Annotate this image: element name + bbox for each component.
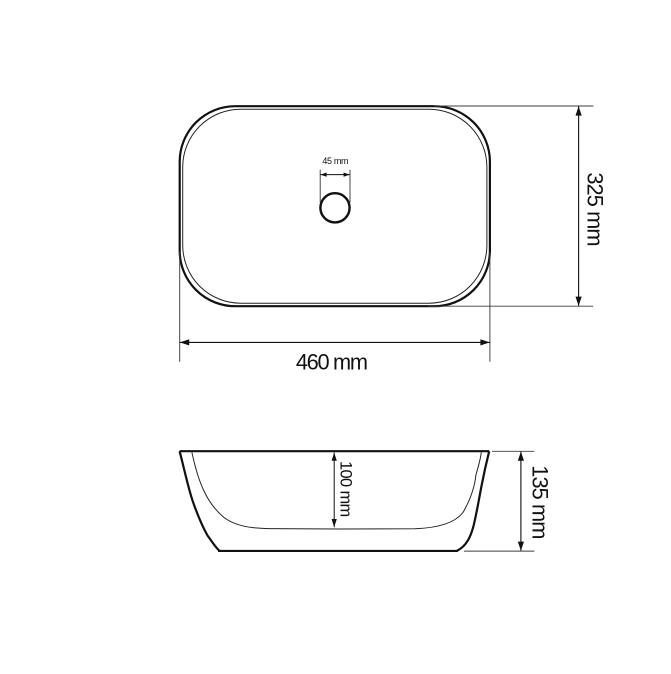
- svg-text:325 mm: 325 mm: [582, 172, 607, 245]
- svg-text:45 mm: 45 mm: [322, 156, 348, 166]
- svg-text:100 mm: 100 mm: [336, 461, 354, 517]
- svg-text:135 mm: 135 mm: [528, 465, 553, 538]
- svg-text:460 mm: 460 mm: [296, 350, 367, 375]
